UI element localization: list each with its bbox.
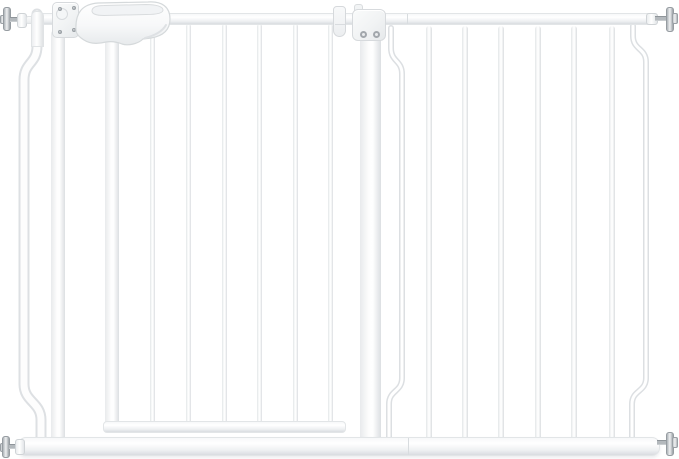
screw: [58, 7, 62, 11]
screw: [58, 30, 62, 34]
screw: [72, 6, 76, 10]
door-bar: [150, 24, 155, 424]
extension-bar: [609, 26, 615, 442]
extension-bar: [498, 26, 504, 442]
extension-bar: [426, 26, 432, 442]
handle-layer: [0, 0, 679, 459]
door-bar: [222, 24, 227, 424]
product-photo-baby-gate: [0, 0, 679, 459]
spindle-bolt-bottom-right: [645, 428, 679, 459]
bracket-screw: [360, 31, 367, 38]
extension-curved-bar-left: [389, 28, 402, 442]
extension-bar: [571, 26, 577, 442]
latch-plate: [52, 2, 79, 38]
left-post-top-cap: [31, 11, 44, 47]
bracket-body: [352, 9, 386, 41]
junction-bracket: [352, 4, 386, 41]
top-rail-seam: [407, 14, 408, 24]
spindle-bolt-top-left: [0, 0, 50, 45]
left-frame-post: [24, 14, 41, 447]
bracket-screw: [373, 31, 380, 38]
extension-bar: [535, 26, 541, 442]
spindle-bolt-top-right: [645, 0, 679, 40]
door-bar: [186, 24, 191, 424]
door-bar: [328, 24, 333, 424]
handle-shade-line: [145, 25, 166, 38]
screw: [72, 28, 76, 32]
extension-curved-bar-right: [632, 26, 646, 440]
extension-bar: [462, 26, 468, 442]
door-left-stile: [105, 34, 119, 430]
door-bar: [293, 24, 298, 424]
extension-left-post: [360, 24, 381, 448]
clamp-seam: [335, 24, 345, 25]
hanger-clamp: [333, 6, 346, 37]
door-bar: [257, 24, 262, 424]
door-bottom-rail: [103, 421, 346, 433]
bottom-rail: [18, 437, 660, 456]
latch-post: [51, 30, 65, 448]
spindle-hub: [672, 13, 678, 24]
spindle-hub: [672, 437, 678, 448]
curved-tubes-layer: [0, 0, 679, 459]
spindle-bolt-bottom-left: [0, 430, 40, 459]
spindle-collar: [15, 439, 25, 455]
bottom-rail-seam: [408, 438, 409, 455]
